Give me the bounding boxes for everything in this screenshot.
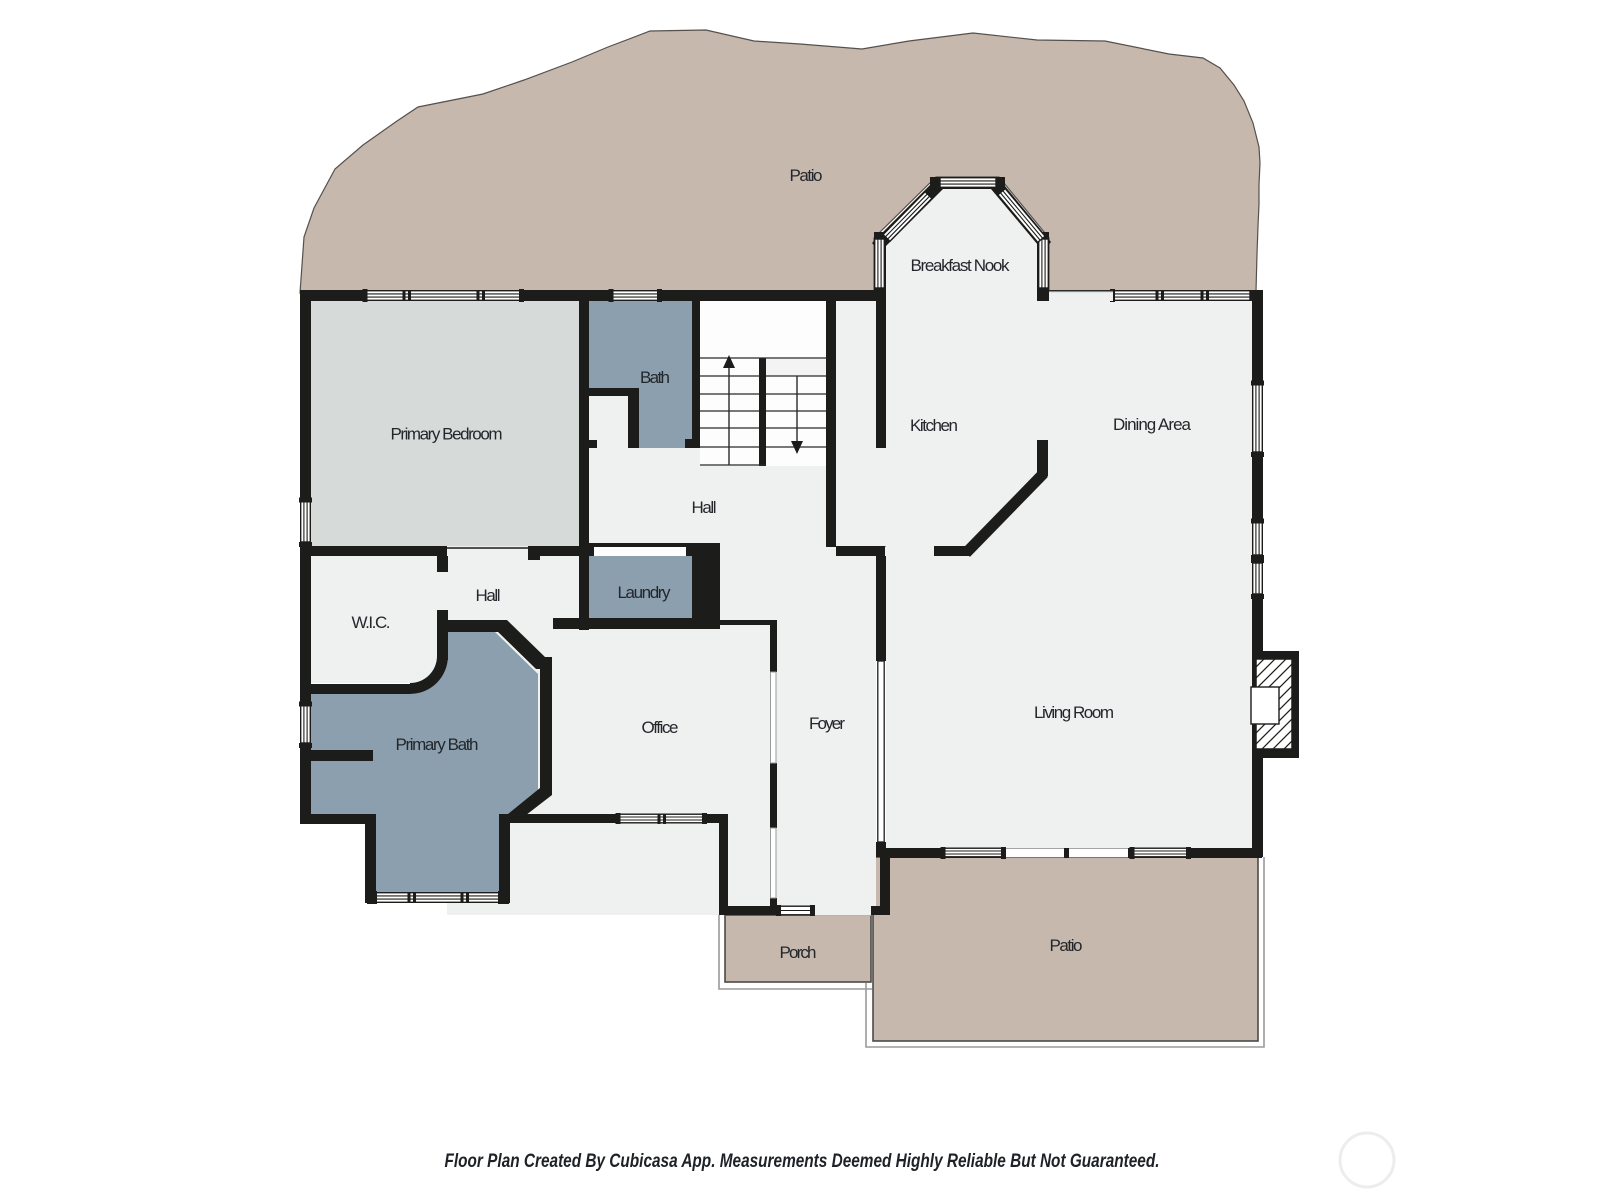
svg-text:Porch: Porch <box>780 943 817 962</box>
svg-text:Dining Area: Dining Area <box>1113 415 1192 434</box>
svg-text:Kitchen: Kitchen <box>910 416 958 435</box>
svg-text:W.I.C.: W.I.C. <box>352 613 391 632</box>
svg-text:Hall: Hall <box>692 498 717 517</box>
svg-text:Bath: Bath <box>640 368 670 387</box>
svg-text:Living Room: Living Room <box>1034 703 1114 722</box>
svg-text:Floor Plan Created By Cubicasa: Floor Plan Created By Cubicasa App. Meas… <box>445 1151 1160 1172</box>
svg-text:Foyer: Foyer <box>809 714 845 733</box>
svg-text:Hall: Hall <box>476 586 501 605</box>
svg-text:Primary Bedroom: Primary Bedroom <box>391 425 503 444</box>
svg-text:Primary Bath: Primary Bath <box>396 735 479 754</box>
svg-text:Patio: Patio <box>1050 936 1083 955</box>
svg-text:Breakfast Nook: Breakfast Nook <box>911 256 1011 275</box>
svg-text:Laundry: Laundry <box>618 583 672 602</box>
svg-text:Office: Office <box>642 718 679 737</box>
svg-text:Patio: Patio <box>790 166 823 185</box>
